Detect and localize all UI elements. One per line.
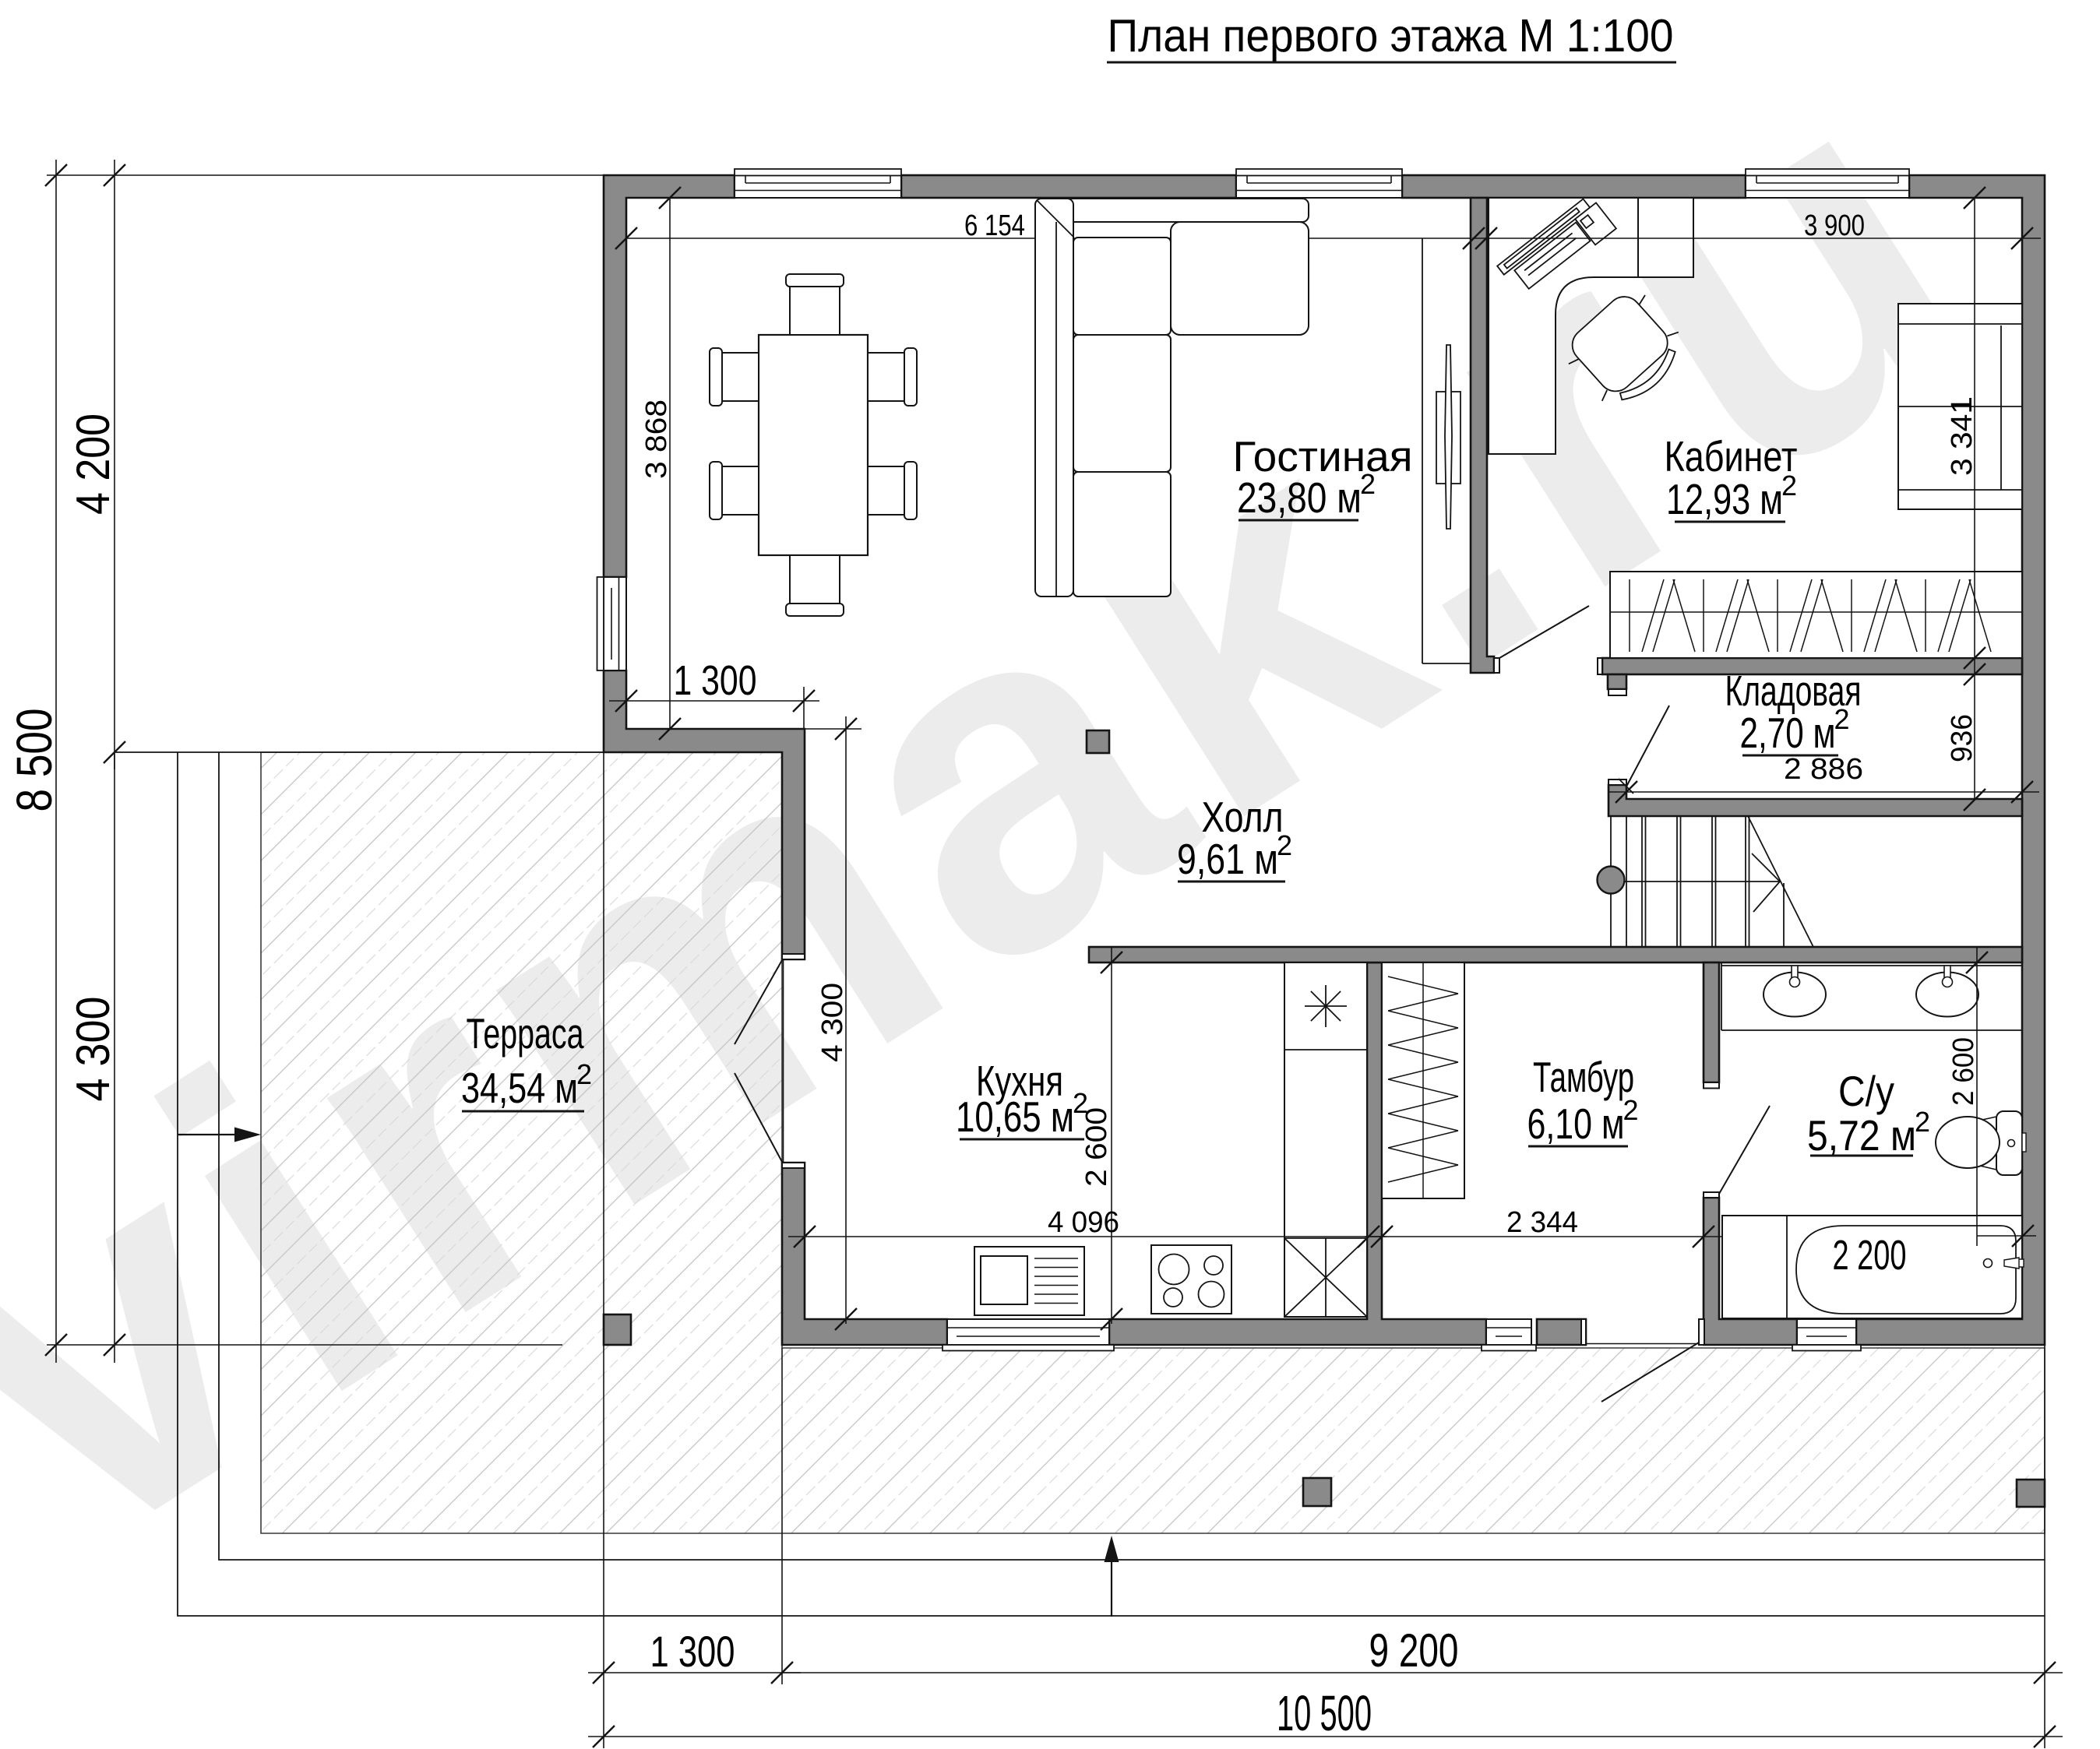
svg-text:2 200: 2 200 (1833, 1232, 1907, 1279)
svg-text:2: 2 (1781, 470, 1797, 501)
svg-text:4 200: 4 200 (67, 413, 119, 515)
svg-text:4 300: 4 300 (67, 997, 119, 1102)
svg-text:С/у: С/у (1838, 1067, 1894, 1115)
svg-text:2: 2 (1623, 1094, 1638, 1126)
svg-text:1 300: 1 300 (650, 1627, 735, 1676)
svg-text:4 096: 4 096 (1048, 1206, 1119, 1239)
svg-text:34,54 м: 34,54 м (461, 1064, 578, 1112)
svg-text:2 886: 2 886 (1784, 753, 1863, 786)
svg-text:Терраса: Терраса (467, 1009, 584, 1057)
svg-text:6 154: 6 154 (964, 209, 1025, 242)
svg-text:936: 936 (1946, 714, 1978, 762)
svg-text:2,70 м: 2,70 м (1740, 709, 1836, 757)
svg-text:Кабинет: Кабинет (1665, 432, 1798, 480)
svg-text:10,65 м: 10,65 м (956, 1093, 1074, 1141)
svg-text:9 200: 9 200 (1369, 1624, 1459, 1677)
svg-text:2: 2 (1277, 829, 1292, 861)
svg-text:План первого этажа М 1:100: План первого этажа М 1:100 (1108, 10, 1674, 62)
svg-text:3 900: 3 900 (1804, 209, 1865, 242)
svg-text:2: 2 (1915, 1106, 1930, 1138)
svg-text:3 341: 3 341 (1946, 396, 1978, 476)
svg-text:12,93 м: 12,93 м (1666, 475, 1783, 523)
svg-text:6,10 м: 6,10 м (1527, 1100, 1625, 1148)
svg-text:2 600: 2 600 (1080, 1107, 1113, 1187)
svg-text:10 500: 10 500 (1277, 1685, 1372, 1741)
svg-text:2 600: 2 600 (1947, 1037, 1980, 1106)
svg-text:2: 2 (1834, 703, 1849, 735)
svg-text:5,72 м: 5,72 м (1807, 1111, 1916, 1160)
svg-text:23,80 м: 23,80 м (1237, 473, 1362, 522)
svg-text:2 344: 2 344 (1506, 1206, 1578, 1239)
svg-text:1 300: 1 300 (674, 657, 757, 704)
svg-text:2: 2 (1073, 1087, 1088, 1119)
svg-text:2: 2 (576, 1058, 592, 1090)
svg-text:Холл: Холл (1202, 793, 1284, 841)
svg-text:3 868: 3 868 (640, 399, 673, 479)
svg-text:Тамбур: Тамбур (1533, 1053, 1634, 1101)
svg-text:8 500: 8 500 (6, 709, 62, 812)
svg-text:2: 2 (1360, 468, 1376, 500)
svg-text:9,61 м: 9,61 м (1177, 835, 1278, 883)
svg-text:4 300: 4 300 (816, 983, 849, 1062)
